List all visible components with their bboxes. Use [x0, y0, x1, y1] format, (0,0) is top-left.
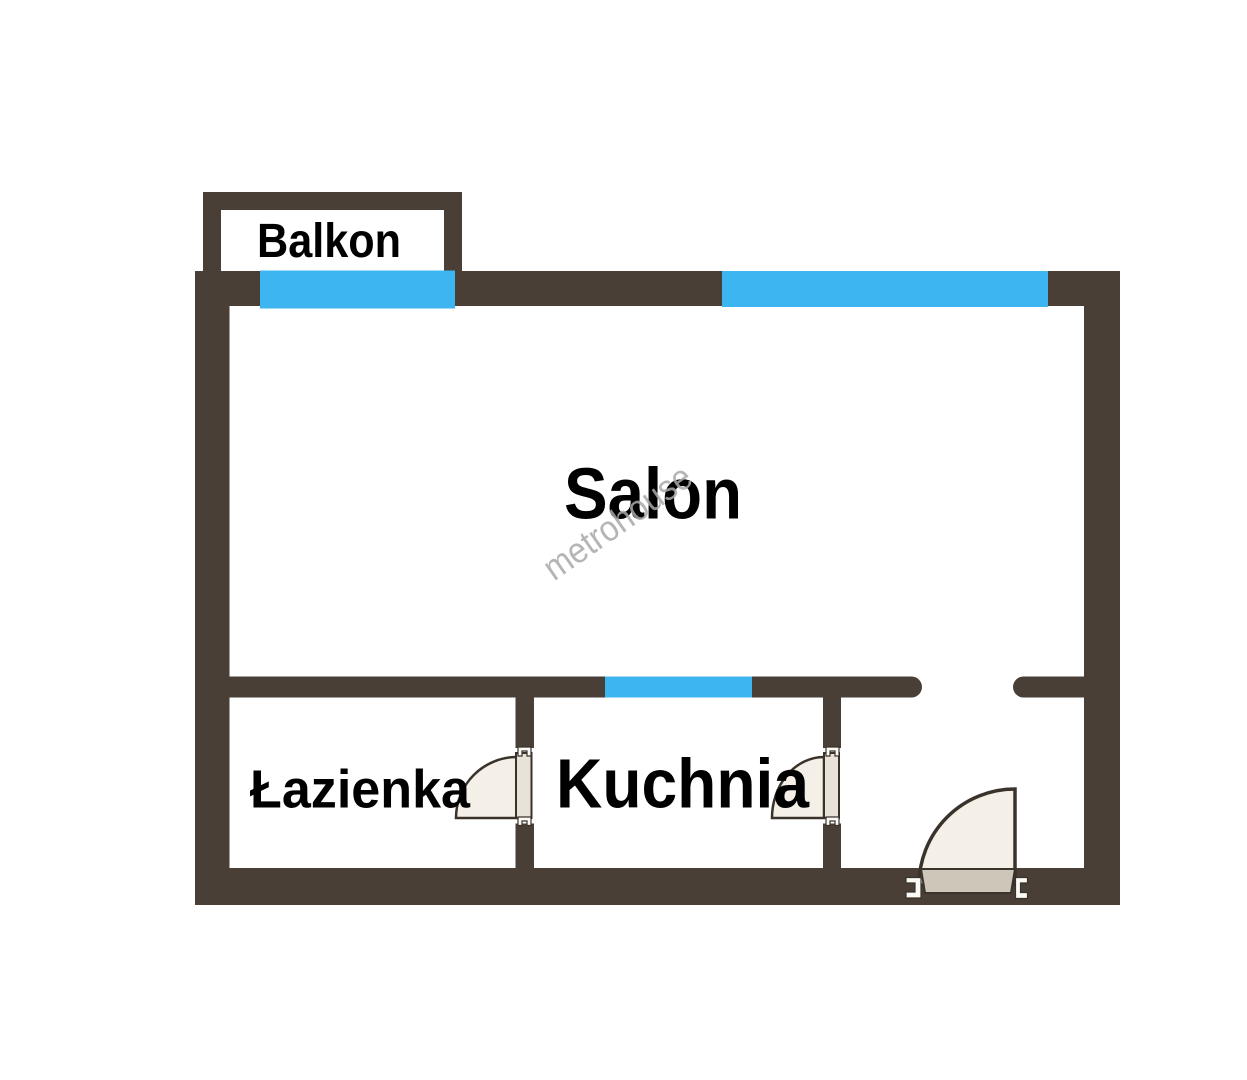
svg-text:Łazienka: Łazienka — [250, 760, 471, 820]
svg-text:Balkon: Balkon — [257, 215, 401, 268]
svg-text:Kuchnia: Kuchnia — [556, 745, 810, 823]
